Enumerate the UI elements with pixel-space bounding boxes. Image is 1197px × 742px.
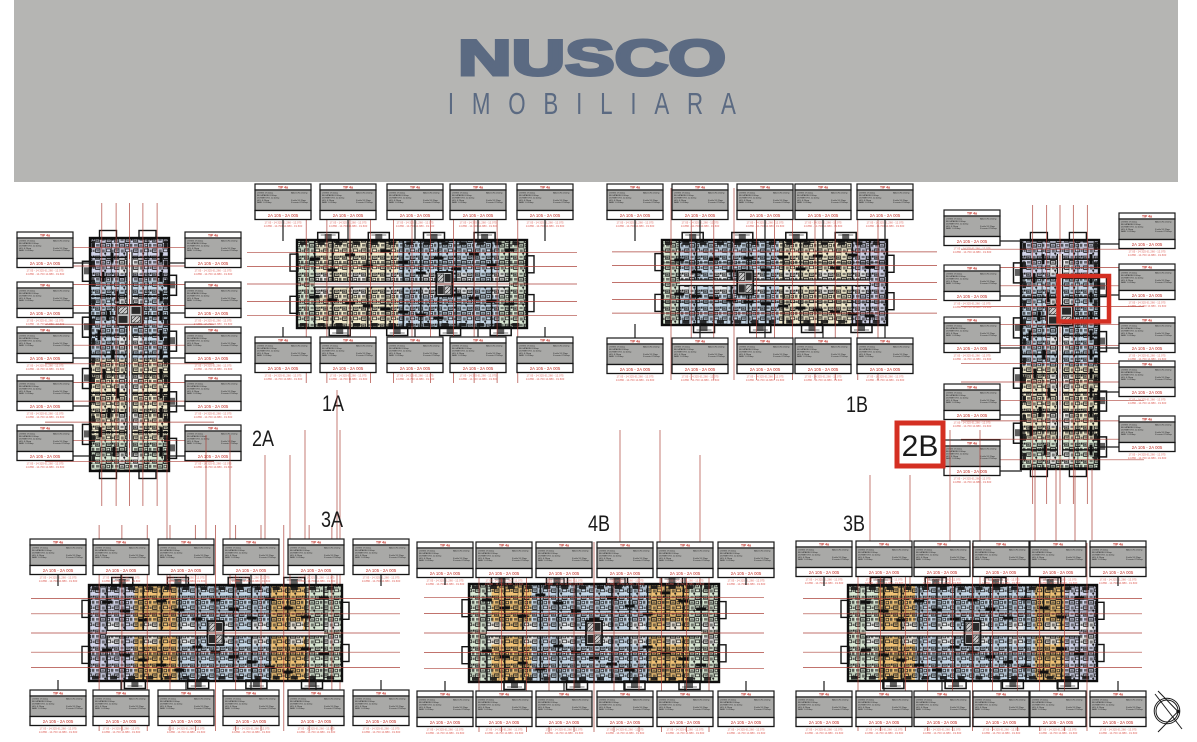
svg-text:NUSCO: NUSCO <box>458 30 726 86</box>
svg-text:4B: 4B <box>588 511 610 536</box>
svg-text:3A: 3A <box>321 507 343 532</box>
svg-text:1A: 1A <box>322 391 344 416</box>
svg-text:2A: 2A <box>252 426 274 451</box>
svg-text:2B: 2B <box>902 430 939 463</box>
svg-text:1B: 1B <box>846 392 868 417</box>
svg-text:3B: 3B <box>843 511 865 536</box>
